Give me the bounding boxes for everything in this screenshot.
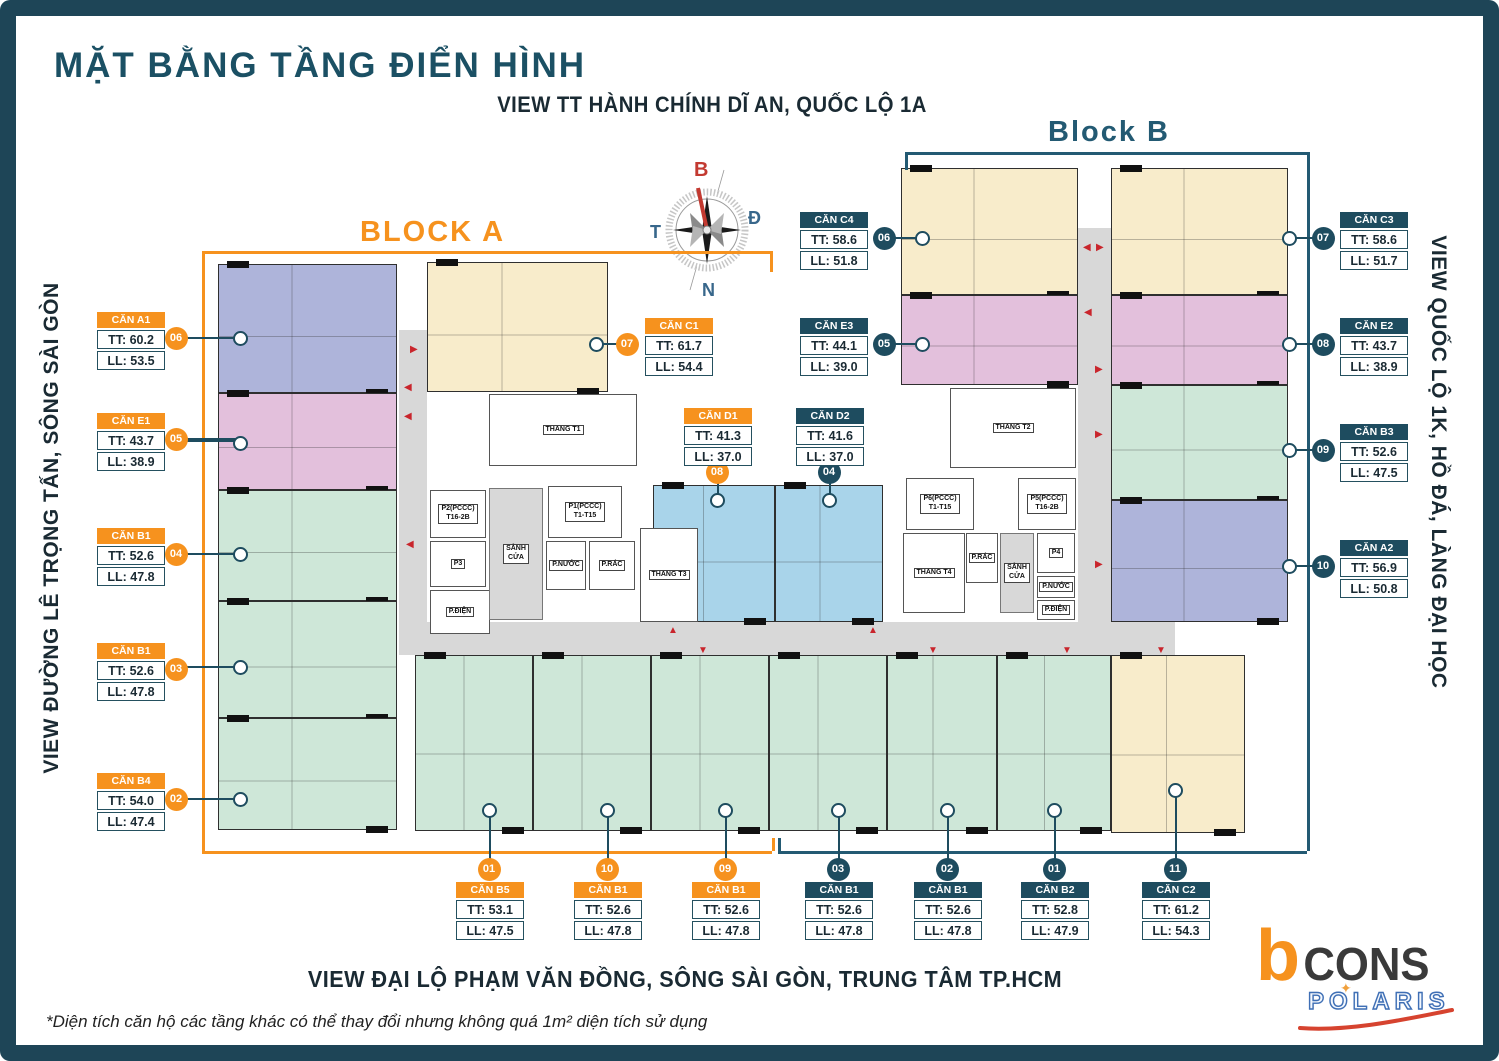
unit-callout-căn-b1: CĂN B1TT: 52.6LL: 47.8	[574, 882, 642, 940]
unit-callout-căn-d2: CĂN D2TT: 41.6LL: 37.0	[796, 408, 864, 466]
core-room-room: P.RÁC	[589, 541, 635, 590]
unit-b1-04	[218, 490, 397, 601]
direction-arrow: ▶	[410, 345, 418, 355]
unit-callout-căn-b1: CĂN B1TT: 52.6LL: 47.8	[97, 528, 165, 586]
unit-callout-căn-e3: CĂN E3TT: 44.1LL: 39.0	[800, 318, 868, 376]
unit-c1	[427, 262, 608, 392]
unit-callout-căn-b1: CĂN B1TT: 52.6LL: 47.8	[692, 882, 760, 940]
unit-badge: 06	[873, 227, 896, 250]
unit-room-lines	[1112, 296, 1287, 384]
unit-room-lines	[416, 656, 532, 830]
callout-tt-area: TT: 58.6	[1340, 230, 1408, 249]
callout-tt-area: TT: 52.6	[914, 900, 982, 919]
callout-tt-area: TT: 52.6	[692, 900, 760, 919]
unit-marker	[233, 436, 248, 451]
unit-callout-căn-b4: CĂN B4TT: 54.0LL: 47.4	[97, 773, 165, 831]
callout-ll-area: LL: 50.8	[1340, 579, 1408, 598]
callout-tt-area: TT: 56.9	[1340, 558, 1408, 577]
unit-marker	[1168, 783, 1183, 798]
callout-unit-name: CĂN B1	[97, 643, 165, 659]
block-bracket-line	[778, 851, 1307, 854]
unit-badge: 05	[165, 428, 188, 451]
unit-badge: 11	[1164, 858, 1187, 881]
callout-tt-area: TT: 60.2	[97, 330, 165, 349]
unit-marker	[1282, 337, 1297, 352]
unit-room-lines	[219, 719, 396, 829]
callout-unit-name: CĂN B1	[805, 882, 873, 898]
callout-unit-name: CĂN B1	[914, 882, 982, 898]
direction-arrow: ▶	[1095, 430, 1103, 440]
unit-badge: 03	[827, 858, 850, 881]
unit-room-lines	[1112, 656, 1244, 832]
callout-unit-name: CĂN C3	[1340, 212, 1408, 228]
callout-unit-name: CĂN B2	[1021, 882, 1089, 898]
unit-c3	[1111, 168, 1288, 295]
unit-b5	[415, 655, 533, 831]
unit-marker	[915, 231, 930, 246]
block-bracket-line	[1307, 152, 1310, 851]
core-room-stairs: THANG T3	[640, 528, 698, 622]
unit-callout-căn-c3: CĂN C3TT: 58.6LL: 51.7	[1340, 212, 1408, 270]
core-room-label: P3	[451, 559, 466, 570]
unit-badge: 05	[873, 333, 896, 356]
callout-tt-area: TT: 41.3	[684, 426, 752, 445]
callout-tt-area: TT: 52.6	[97, 661, 165, 680]
view-top-label: VIEW TT HÀNH CHÍNH DĨ AN, QUỐC LỘ 1A	[57, 92, 1367, 118]
callout-ll-area: LL: 47.9	[1021, 921, 1089, 940]
unit-marker	[831, 803, 846, 818]
unit-callout-căn-b1: CĂN B1TT: 52.6LL: 47.8	[914, 882, 982, 940]
floor-plan-poster: MẶT BẰNG TẦNG ĐIỂN HÌNH VIEW TT HÀNH CHÍ…	[0, 0, 1499, 1061]
callout-unit-name: CĂN C1	[645, 318, 713, 334]
unit-a1	[218, 264, 397, 393]
unit-room-lines	[219, 265, 396, 392]
view-right-label: VIEW QUỐC LỘ 1K, HỒ ĐÁ, LÀNG ĐẠI HỌC	[1426, 235, 1450, 688]
unit-marker	[940, 803, 955, 818]
core-room-label: P5(PCCC) T16-2B	[1027, 494, 1066, 514]
core-room-lobby: SẢNH CỬA	[1000, 533, 1034, 613]
callout-tt-area: TT: 41.6	[796, 426, 864, 445]
core-room-room: P.RÁC	[966, 533, 998, 583]
callout-unit-name: CĂN A2	[1340, 540, 1408, 556]
callout-ll-area: LL: 51.7	[1340, 251, 1408, 270]
core-room-lift: P1(PCCC) T1-T15	[548, 486, 622, 538]
callout-tt-area: TT: 52.6	[805, 900, 873, 919]
core-room-label: THANG T1	[543, 425, 584, 436]
polaris-star-icon: ✦	[1340, 980, 1352, 997]
unit-marker	[822, 493, 837, 508]
block-bracket-line	[778, 838, 781, 851]
unit-marker	[915, 337, 930, 352]
core-room-label: P.ĐIỆN	[1042, 605, 1070, 616]
compass-east: Đ	[748, 208, 761, 228]
core-room-label: SẢNH CỬA	[1004, 563, 1030, 583]
block-bracket-line	[772, 838, 775, 851]
core-room-lift: P6(PCCC) T1-T15	[906, 478, 974, 530]
unit-room-lines	[1112, 169, 1287, 294]
unit-callout-căn-b1: CĂN B1TT: 52.6LL: 47.8	[97, 643, 165, 701]
callout-unit-name: CĂN D2	[796, 408, 864, 424]
unit-room-lines	[219, 491, 396, 600]
direction-arrow: ◀	[404, 383, 412, 393]
core-room-label: P.ĐIỆN	[446, 607, 474, 618]
unit-badge: 02	[936, 858, 959, 881]
callout-ll-area: LL: 47.8	[914, 921, 982, 940]
unit-marker	[1282, 231, 1297, 246]
callout-ll-area: LL: 47.5	[1340, 463, 1408, 482]
direction-arrow: ▶	[1095, 365, 1103, 375]
unit-badge: 08	[1312, 333, 1335, 356]
core-room-label: THANG T4	[914, 568, 955, 579]
unit-callout-căn-b1: CĂN B1TT: 52.6LL: 47.8	[805, 882, 873, 940]
unit-marker	[233, 331, 248, 346]
direction-arrow: ◀	[404, 412, 412, 422]
unit-callout-căn-d1: CĂN D1TT: 41.3LL: 37.0	[684, 408, 752, 466]
callout-tt-area: TT: 52.8	[1021, 900, 1089, 919]
direction-arrow: ▲	[868, 626, 878, 636]
callout-tt-area: TT: 54.0	[97, 791, 165, 810]
direction-arrow: ◀	[1083, 243, 1091, 253]
unit-room-lines	[652, 656, 768, 830]
core-room-label: P1(PCCC) T1-T15	[565, 502, 604, 522]
core-room-lift: P5(PCCC) T16-2B	[1018, 478, 1076, 530]
unit-c2	[1111, 655, 1245, 833]
compass-west: T	[650, 222, 661, 242]
bcons-polaris-logo: bCONS ✦ POLARIS	[1256, 928, 1482, 1028]
block-bracket-line	[202, 251, 770, 254]
core-room-stairs: THANG T1	[489, 394, 637, 466]
callout-tt-area: TT: 43.7	[1340, 336, 1408, 355]
callout-unit-name: CĂN E2	[1340, 318, 1408, 334]
unit-callout-căn-b5: CĂN B5TT: 53.1LL: 47.5	[456, 882, 524, 940]
compass-icon: B Đ T N	[650, 156, 766, 300]
unit-b1-09	[651, 655, 769, 831]
core-room-stairs: THANG T2	[950, 388, 1076, 468]
unit-marker	[233, 792, 248, 807]
callout-ll-area: LL: 37.0	[684, 447, 752, 466]
callout-unit-name: CĂN B1	[97, 528, 165, 544]
direction-arrow: ◀	[406, 540, 414, 550]
callout-unit-name: CĂN D1	[684, 408, 752, 424]
unit-b1-03	[218, 601, 397, 718]
unit-badge: 02	[165, 788, 188, 811]
unit-badge: 07	[1312, 227, 1335, 250]
core-room-label: P.RÁC	[599, 560, 626, 571]
unit-badge: 10	[596, 858, 619, 881]
callout-ll-area: LL: 53.5	[97, 351, 165, 370]
callout-tt-area: TT: 61.2	[1142, 900, 1210, 919]
block-a-label: BLOCK A	[360, 216, 505, 249]
callout-unit-name: CĂN A1	[97, 312, 165, 328]
callout-ll-area: LL: 39.0	[800, 357, 868, 376]
unit-callout-căn-c2: CĂN C2TT: 61.2LL: 54.3	[1142, 882, 1210, 940]
direction-arrow: ▶	[1096, 243, 1104, 253]
view-bottom-label: VIEW ĐẠI LỘ PHẠM VĂN ĐỒNG, SÔNG SÀI GÒN,…	[41, 966, 1329, 993]
unit-b1-03b	[769, 655, 887, 831]
unit-marker	[1282, 559, 1297, 574]
unit-badge: 04	[165, 543, 188, 566]
unit-marker	[482, 803, 497, 818]
callout-ll-area: LL: 47.8	[805, 921, 873, 940]
callout-tt-area: TT: 61.7	[645, 336, 713, 355]
callout-tt-area: TT: 52.6	[574, 900, 642, 919]
callout-ll-area: LL: 47.4	[97, 812, 165, 831]
unit-marker	[1047, 803, 1062, 818]
unit-badge: 07	[616, 333, 639, 356]
callout-ll-area: LL: 54.4	[645, 357, 713, 376]
callout-unit-name: CĂN B4	[97, 773, 165, 789]
core-room-label: P.NƯỚC	[549, 560, 583, 571]
core-room-room: P.NƯỚC	[1037, 576, 1075, 598]
unit-callout-căn-a2: CĂN A2TT: 56.9LL: 50.8	[1340, 540, 1408, 598]
corridor	[399, 622, 1175, 655]
unit-room-lines	[534, 656, 650, 830]
callout-ll-area: LL: 47.8	[574, 921, 642, 940]
callout-ll-area: LL: 38.9	[1340, 357, 1408, 376]
direction-arrow: ▼	[1062, 646, 1072, 656]
unit-callout-căn-e1: CĂN E1TT: 43.7LL: 38.9	[97, 413, 165, 471]
unit-room-lines	[1112, 386, 1287, 499]
core-room-label: SẢNH CỬA	[503, 544, 529, 564]
callout-unit-name: CĂN B1	[574, 882, 642, 898]
view-left-label: VIEW ĐƯỜNG LÊ TRỌNG TẤN, SÔNG SÀI GÒN	[40, 282, 64, 773]
unit-marker	[233, 660, 248, 675]
unit-room-lines	[770, 656, 886, 830]
unit-marker	[600, 803, 615, 818]
callout-ll-area: LL: 54.3	[1142, 921, 1210, 940]
unit-badge: 10	[1312, 555, 1335, 578]
logo-swoosh	[1296, 1008, 1456, 1032]
unit-marker	[233, 547, 248, 562]
compass-north: B	[694, 159, 708, 181]
callout-ll-area: LL: 47.8	[692, 921, 760, 940]
callout-ll-area: LL: 47.5	[456, 921, 524, 940]
core-room-label: THANG T2	[993, 423, 1034, 434]
unit-callout-căn-b2: CĂN B2TT: 52.8LL: 47.9	[1021, 882, 1089, 940]
corridor	[1078, 228, 1111, 655]
callout-ll-area: LL: 47.8	[97, 567, 165, 586]
logo-b-glyph: b	[1256, 920, 1300, 992]
core-room-lift: P3	[430, 541, 486, 587]
unit-room-lines	[1112, 501, 1287, 621]
unit-room-lines	[902, 169, 1077, 294]
core-room-label: P.RÁC	[969, 553, 996, 564]
direction-arrow: ▼	[928, 646, 938, 656]
callout-unit-name: CĂN B3	[1340, 424, 1408, 440]
direction-arrow: ▲	[668, 626, 678, 636]
corridor	[399, 330, 427, 655]
unit-room-lines	[219, 602, 396, 717]
unit-c4	[901, 168, 1078, 295]
core-room-room: P.NƯỚC	[546, 541, 586, 590]
unit-b4-02	[218, 718, 397, 830]
unit-room-lines	[428, 263, 607, 391]
callout-unit-name: CĂN E3	[800, 318, 868, 334]
core-room-room: P.ĐIỆN	[430, 590, 490, 634]
core-room-lobby: SẢNH CỬA	[489, 488, 543, 620]
callout-unit-name: CĂN C4	[800, 212, 868, 228]
callout-tt-area: TT: 53.1	[456, 900, 524, 919]
core-room-label: THANG T3	[649, 570, 690, 581]
unit-callout-căn-c1: CĂN C1TT: 61.7LL: 54.4	[645, 318, 713, 376]
core-room-room: P4	[1037, 533, 1075, 573]
unit-badge: 09	[1312, 439, 1335, 462]
callout-tt-area: TT: 44.1	[800, 336, 868, 355]
block-b-label: Block B	[1048, 116, 1170, 149]
core-room-label: P2(PCCC) T16-2B	[438, 504, 477, 524]
direction-arrow: ▼	[1156, 646, 1166, 656]
callout-tt-area: TT: 52.6	[1340, 442, 1408, 461]
callout-unit-name: CĂN C2	[1142, 882, 1210, 898]
unit-marker	[1282, 443, 1297, 458]
unit-badge: 06	[165, 327, 188, 350]
direction-arrow: ▶	[1095, 560, 1103, 570]
callout-tt-area: TT: 43.7	[97, 431, 165, 450]
unit-marker	[718, 803, 733, 818]
unit-badge: 01	[478, 858, 501, 881]
callout-unit-name: CĂN E1	[97, 413, 165, 429]
block-bracket-line	[905, 152, 1307, 155]
callout-tt-area: TT: 58.6	[800, 230, 868, 249]
block-bracket-line	[770, 251, 773, 272]
callout-unit-name: CĂN B5	[456, 882, 524, 898]
callout-unit-name: CĂN B1	[692, 882, 760, 898]
callout-ll-area: LL: 37.0	[796, 447, 864, 466]
callout-tt-area: TT: 52.6	[97, 546, 165, 565]
core-room-label: P6(PCCC) T1-T15	[920, 494, 959, 514]
core-room-label: P.NƯỚC	[1039, 582, 1073, 593]
unit-callout-căn-e2: CĂN E2TT: 43.7LL: 38.9	[1340, 318, 1408, 376]
unit-badge: 01	[1043, 858, 1066, 881]
core-room-lift: P2(PCCC) T16-2B	[430, 490, 486, 538]
unit-b1-10	[533, 655, 651, 831]
core-room-stairs: THANG T4	[903, 533, 965, 613]
unit-b3	[1111, 385, 1288, 500]
block-bracket-line	[905, 152, 908, 170]
callout-ll-area: LL: 38.9	[97, 452, 165, 471]
unit-callout-căn-a1: CĂN A1TT: 60.2LL: 53.5	[97, 312, 165, 370]
callout-ll-area: LL: 47.8	[97, 682, 165, 701]
unit-marker	[589, 337, 604, 352]
unit-a2	[1111, 500, 1288, 622]
block-bracket-line	[202, 851, 772, 854]
core-room-label: P4	[1049, 548, 1064, 559]
block-bracket-line	[202, 251, 205, 851]
unit-callout-căn-c4: CĂN C4TT: 58.6LL: 51.8	[800, 212, 868, 270]
callout-ll-area: LL: 51.8	[800, 251, 868, 270]
footnote: *Diện tích căn hộ các tầng khác có thể t…	[46, 1012, 707, 1032]
direction-arrow: ◀	[1084, 308, 1092, 318]
unit-e2	[1111, 295, 1288, 385]
unit-marker	[710, 493, 725, 508]
unit-badge: 03	[165, 658, 188, 681]
page-title: MẶT BẰNG TẦNG ĐIỂN HÌNH	[54, 46, 586, 86]
unit-badge: 09	[714, 858, 737, 881]
callout-leader-line	[1175, 789, 1177, 868]
unit-callout-căn-b3: CĂN B3TT: 52.6LL: 47.5	[1340, 424, 1408, 482]
direction-arrow: ▼	[698, 646, 708, 656]
compass-south: N	[702, 280, 715, 300]
core-room-room: P.ĐIỆN	[1037, 600, 1075, 620]
